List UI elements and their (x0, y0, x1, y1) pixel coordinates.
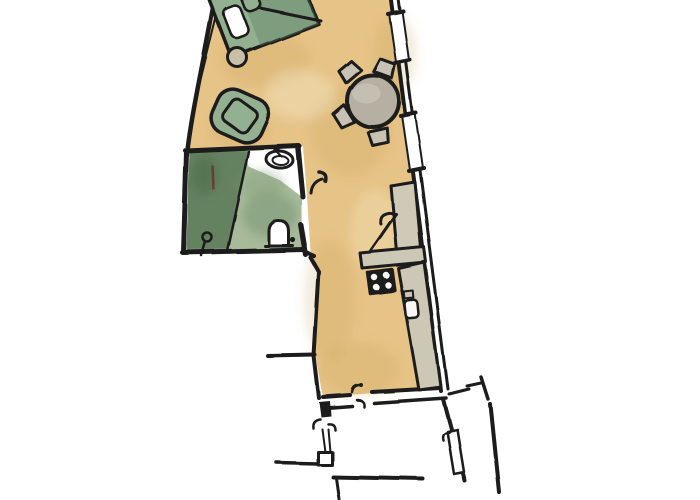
stair-wall-c-stub (467, 383, 481, 386)
floor-plan-page (0, 0, 700, 500)
bottom-wall-lower (326, 398, 446, 408)
landing-wall-west (277, 463, 318, 464)
stair-wall-stub-right (449, 389, 469, 394)
landing-pier (318, 452, 332, 465)
corridor-wall-stub (268, 355, 315, 356)
entry-door-hinge-dot (359, 383, 363, 387)
shower-red-mark (213, 166, 214, 190)
entry-door-swing-lower (357, 400, 364, 407)
floor-plan-drawing (0, 0, 700, 500)
landing-door-swing-right (328, 424, 335, 430)
landing-wall-stub (319, 401, 331, 417)
stove (367, 269, 395, 294)
landing-thin-wall-b (328, 429, 330, 452)
stair-wall-c (490, 404, 499, 492)
stair-wall-c-top (481, 377, 488, 399)
bathroom-wall-left (184, 152, 187, 253)
landing-thin-wall-a (322, 429, 325, 452)
landing-door-swing-left (313, 419, 320, 428)
dining-chair-4 (368, 128, 390, 146)
bathroom-wall-bottom (183, 250, 305, 253)
stair-door-leaf (447, 429, 464, 474)
landing-wall-down (336, 478, 339, 499)
dining-table-shading (352, 83, 380, 103)
landing-wall-east (333, 477, 423, 479)
side-table (228, 48, 247, 67)
